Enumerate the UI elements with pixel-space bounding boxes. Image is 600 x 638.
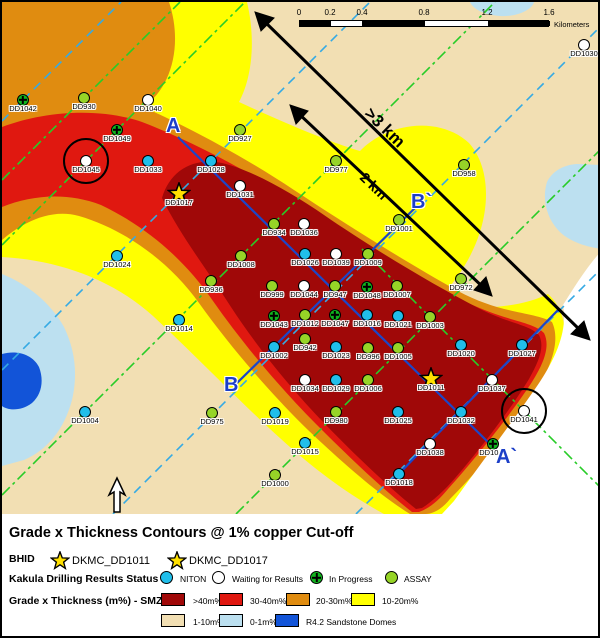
- legend-status-item-label: In Progress: [329, 574, 372, 584]
- section-label-b: B: [224, 374, 238, 397]
- legend-grade-swatch: [219, 614, 243, 627]
- drillhole-label: DD1040: [113, 105, 183, 113]
- drill-holes-layer: DD1030DD1042DD930DD1040DD1049DD1045DD103…: [2, 2, 600, 514]
- legend-star-icon: [167, 551, 187, 571]
- legend-grade-swatch: [161, 593, 185, 606]
- legend-grade-swatch: [161, 614, 185, 627]
- legend-grade-label-text: R4.2 Sandstone Domes: [306, 617, 396, 627]
- drillhole-label: DD1036: [269, 229, 339, 237]
- map-figure: 00.20.40.81.21.6 Kilometers DD1030DD1042…: [0, 0, 600, 638]
- legend-status-dot-waiting: [212, 571, 225, 584]
- legend-status-item-label: NITON: [180, 574, 206, 584]
- drillhole-label: DD1011: [396, 384, 466, 392]
- legend-grade-swatch: [286, 593, 310, 606]
- legend-star-icon: [50, 551, 70, 571]
- legend-status-dot-niton: [160, 571, 173, 584]
- drillhole-label: DD1004: [50, 417, 120, 425]
- drillhole-label: DD1007: [362, 291, 432, 299]
- drillhole-label: DD1008: [206, 261, 276, 269]
- drillhole-label: DD1014: [144, 325, 214, 333]
- drillhole-label: DD1024: [82, 261, 152, 269]
- legend-grade-swatch: [275, 614, 299, 627]
- drillhole-label: DD1020: [426, 350, 496, 358]
- legend-grade-label-text: 10-20m%: [382, 596, 418, 606]
- legend-status-item-label: Waiting for Results: [232, 574, 303, 584]
- legend-grade-label-text: 0-1m%: [250, 617, 277, 627]
- drillhole-label: DD1031: [205, 191, 275, 199]
- legend-bhid-label: BHID: [9, 553, 35, 565]
- drillhole-label: DD972: [426, 284, 496, 292]
- drillhole-label: DD1017: [144, 199, 214, 207]
- legend-grade-swatch: [219, 593, 243, 606]
- drillhole-label: DD1041: [489, 416, 559, 424]
- star-icon: [167, 551, 187, 571]
- legend-bhid-item-label: DKMC_DD1011: [72, 555, 150, 567]
- section-label-b-prime: B`: [411, 191, 432, 214]
- drillhole-label: DD1019: [240, 418, 310, 426]
- drillhole-label: DD1038: [395, 449, 465, 457]
- drillhole-label: DD1045: [51, 166, 121, 174]
- drillhole-label: DD1002: [239, 352, 309, 360]
- legend-grade-label-text: >40m%: [193, 596, 222, 606]
- drillhole-label: DD980: [301, 417, 371, 425]
- drillhole-label: DD1003: [395, 322, 465, 330]
- legend-title: Grade x Thickness Contours @ 1% copper C…: [9, 525, 353, 541]
- legend-grade-label-text: 30-40m%: [250, 596, 286, 606]
- drillhole-label: DD1027: [487, 350, 557, 358]
- legend-grade-swatch: [351, 593, 375, 606]
- drillhole-label: DD1030: [549, 50, 600, 58]
- legend-bhid-item-label: DKMC_DD1017: [189, 555, 268, 567]
- section-label-a-prime: A`: [496, 446, 517, 469]
- drillhole-label: DD958: [429, 170, 499, 178]
- drillhole-label: DD977: [301, 166, 371, 174]
- section-label-a: A: [166, 115, 180, 138]
- legend-grade-label: Grade x Thickness (m%) - SMZ10: [9, 595, 174, 607]
- legend: Grade x Thickness Contours @ 1% copper C…: [2, 516, 600, 638]
- legend-grade-label-text: 20-30m%: [316, 596, 352, 606]
- legend-status-dot-inprogress: [310, 571, 323, 584]
- drillhole-label: DD1015: [270, 448, 340, 456]
- legend-status-item-label: ASSAY: [404, 574, 432, 584]
- drillhole-label: DD1028: [176, 166, 246, 174]
- drillhole-label: DD1033: [113, 166, 183, 174]
- legend-status-label: Kakula Drilling Results Status: [9, 573, 158, 585]
- drillhole-label: DD1046: [458, 449, 528, 457]
- map-canvas: 00.20.40.81.21.6 Kilometers DD1030DD1042…: [2, 2, 600, 514]
- drillhole-label: DD975: [177, 418, 247, 426]
- drillhole-label: DD927: [205, 135, 275, 143]
- drillhole-label: DD936: [176, 286, 246, 294]
- drillhole-label: DD1009: [333, 259, 403, 267]
- drillhole-label: DD1025: [363, 417, 433, 425]
- star-icon: [50, 551, 70, 571]
- legend-status-dot-assay: [385, 571, 398, 584]
- drillhole-label: DD1005: [363, 353, 433, 361]
- drillhole-label: DD1001: [364, 225, 434, 233]
- drillhole-label: DD1000: [240, 480, 310, 488]
- drillhole-label: DD1006: [333, 385, 403, 393]
- drillhole-label: DD930: [49, 103, 119, 111]
- drillhole-label: DD1018: [364, 479, 434, 487]
- drillhole-label: DD1032: [426, 417, 496, 425]
